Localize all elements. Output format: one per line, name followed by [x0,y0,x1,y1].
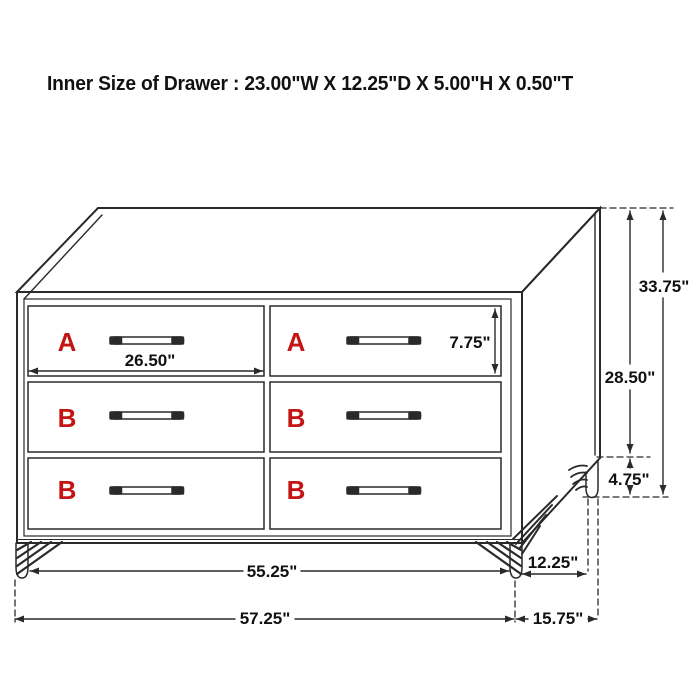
drawer-label: B [287,475,306,505]
page-title: Inner Size of Drawer : 23.00"W X 12.25"D… [47,73,573,95]
top-face-inner-edge [24,215,102,299]
drawer-label: A [287,327,306,357]
dimension-label-leg-height: 4.75" [608,470,649,489]
dimension-label-side-leg-span: 12.25" [528,553,579,572]
dresser-top-face [17,208,600,292]
dresser-side-face [522,208,600,543]
furniture-dimension-diagram: Inner Size of Drawer : 23.00"W X 12.25"D… [0,0,700,700]
drawer-label: A [58,327,77,357]
dimension-label-overall-depth: 15.75" [533,609,584,628]
dimension-label-overall-width: 57.25" [240,609,291,628]
drawer-handle [347,337,421,344]
drawer-handle [110,412,184,419]
front-left-leg [16,542,62,578]
drawer-handle [110,337,184,344]
drawer-handle [347,412,421,419]
drawer-fronts [28,306,501,529]
dimension-label-front-leg-span: 55.25" [247,562,298,581]
drawer-label: B [287,403,306,433]
drawer-label: B [58,475,77,505]
dresser-diagram-canvas: Inner Size of Drawer : 23.00"W X 12.25"D… [0,0,700,700]
dimension-label-drawer-width: 26.50" [125,351,176,370]
drawer-handle [110,487,184,494]
front-face-inner-frame [24,299,511,536]
dimension-label-drawer-face-height: 7.75" [449,333,490,352]
dimension-label-body-height: 28.50" [605,368,656,387]
drawer-handle [347,487,421,494]
dimension-label-overall-height: 33.75" [639,277,690,296]
drawer-label: B [58,403,77,433]
